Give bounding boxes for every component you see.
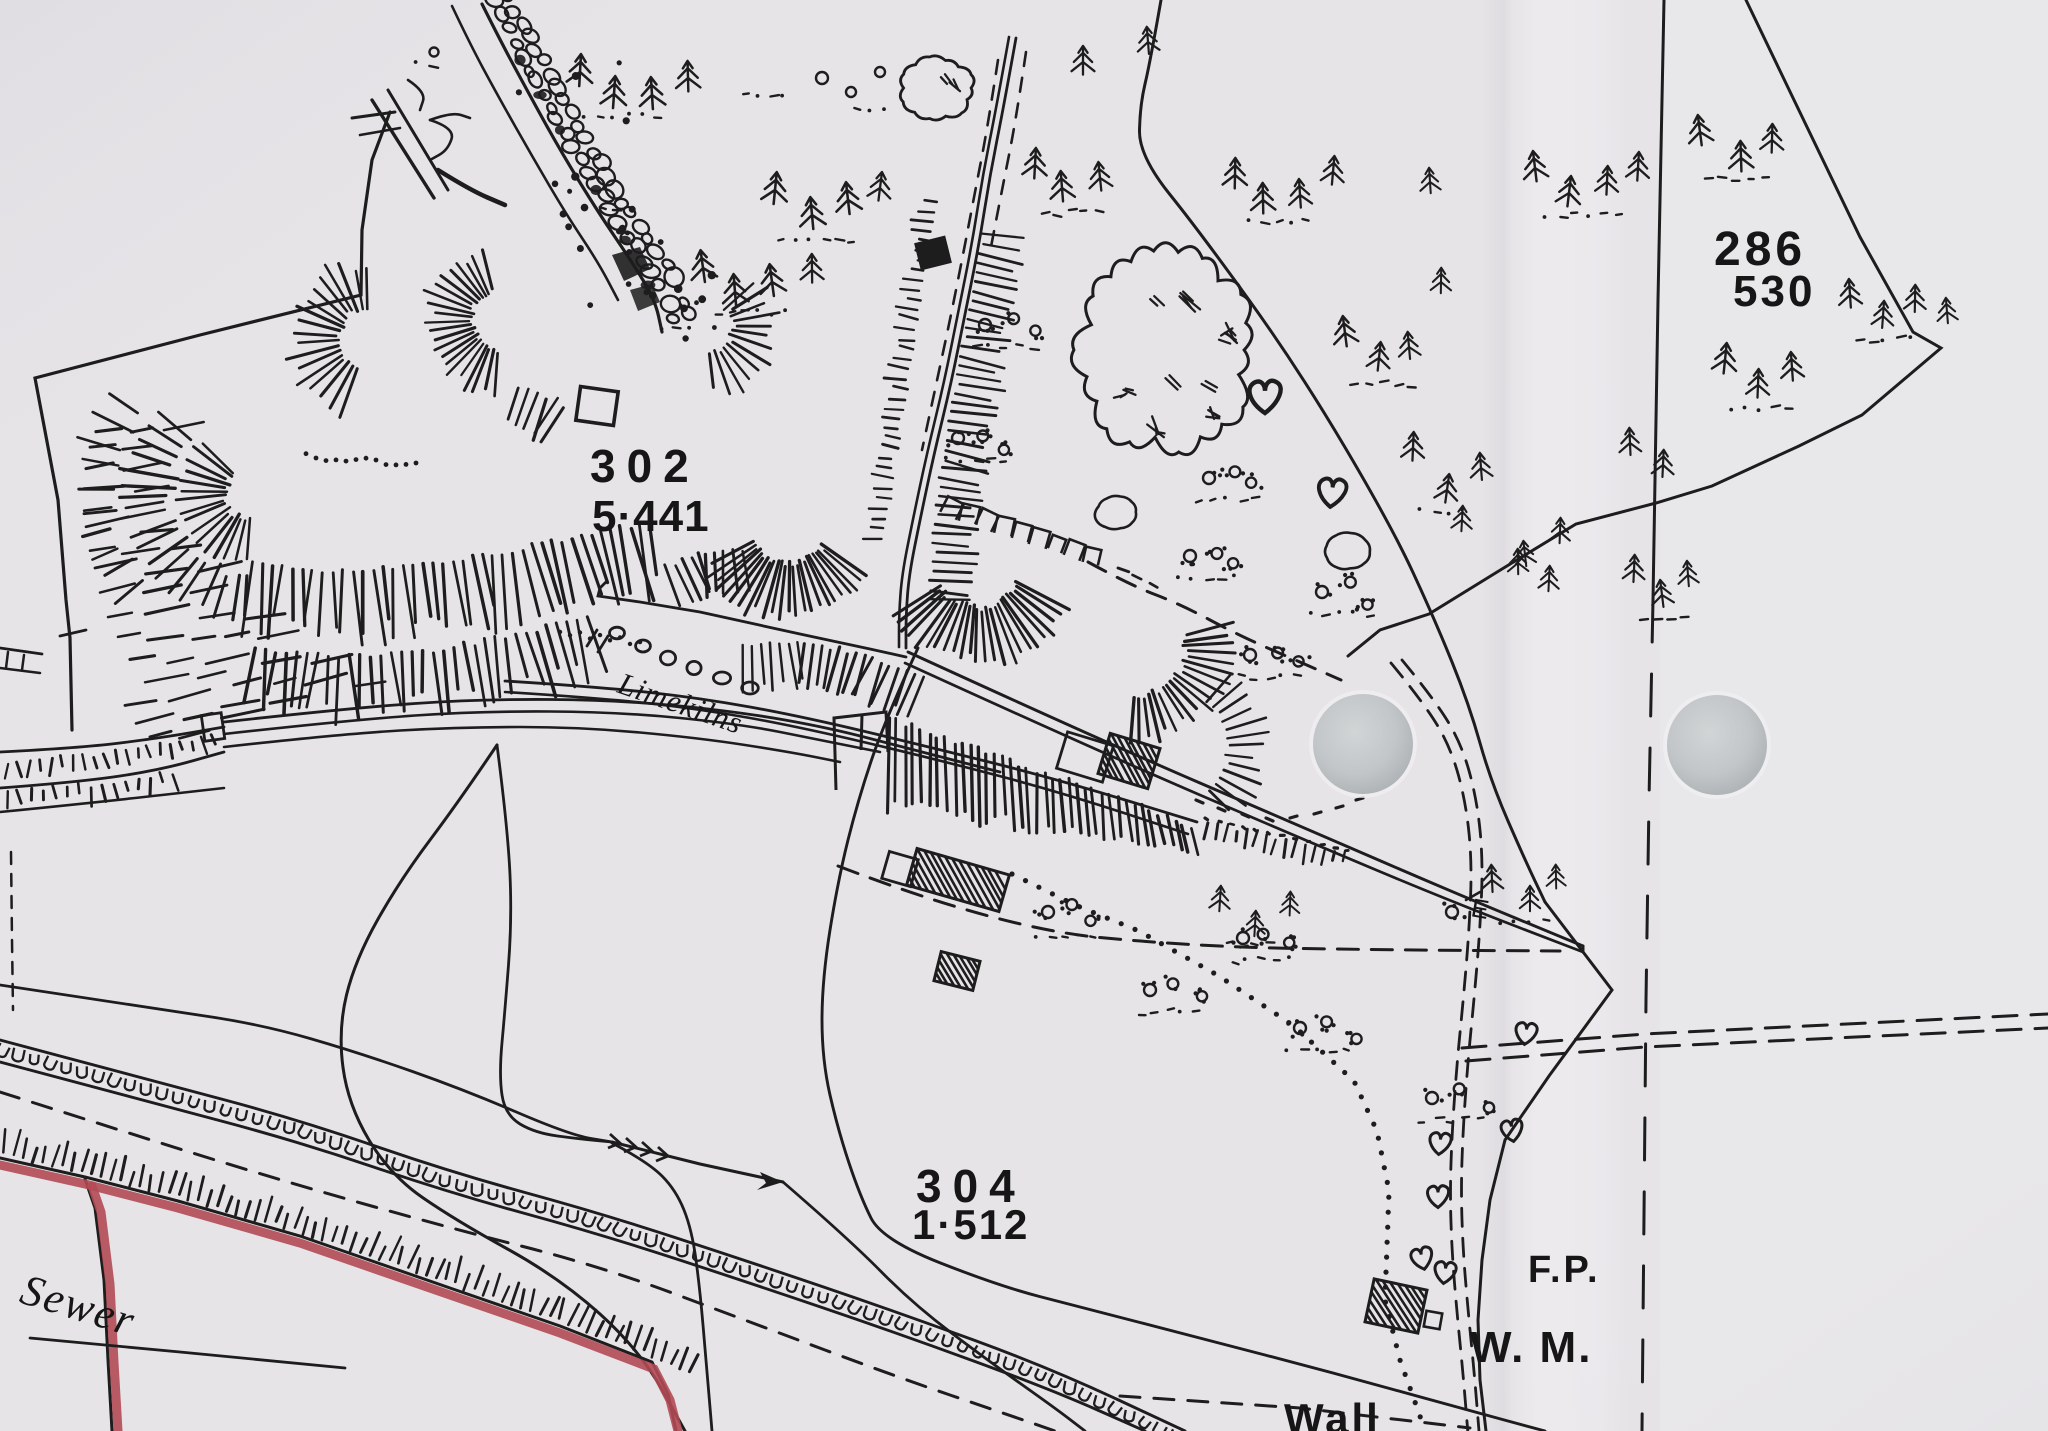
svg-text:Wall: Wall <box>1284 1395 1381 1431</box>
svg-text:F.P.: F.P. <box>1528 1249 1601 1291</box>
svg-text:5·441: 5·441 <box>592 492 710 541</box>
svg-text:302: 302 <box>590 440 700 492</box>
svg-text:W. M.: W. M. <box>1470 1323 1592 1372</box>
svg-text:1·512: 1·512 <box>912 1201 1029 1248</box>
svg-text:530: 530 <box>1733 267 1815 316</box>
